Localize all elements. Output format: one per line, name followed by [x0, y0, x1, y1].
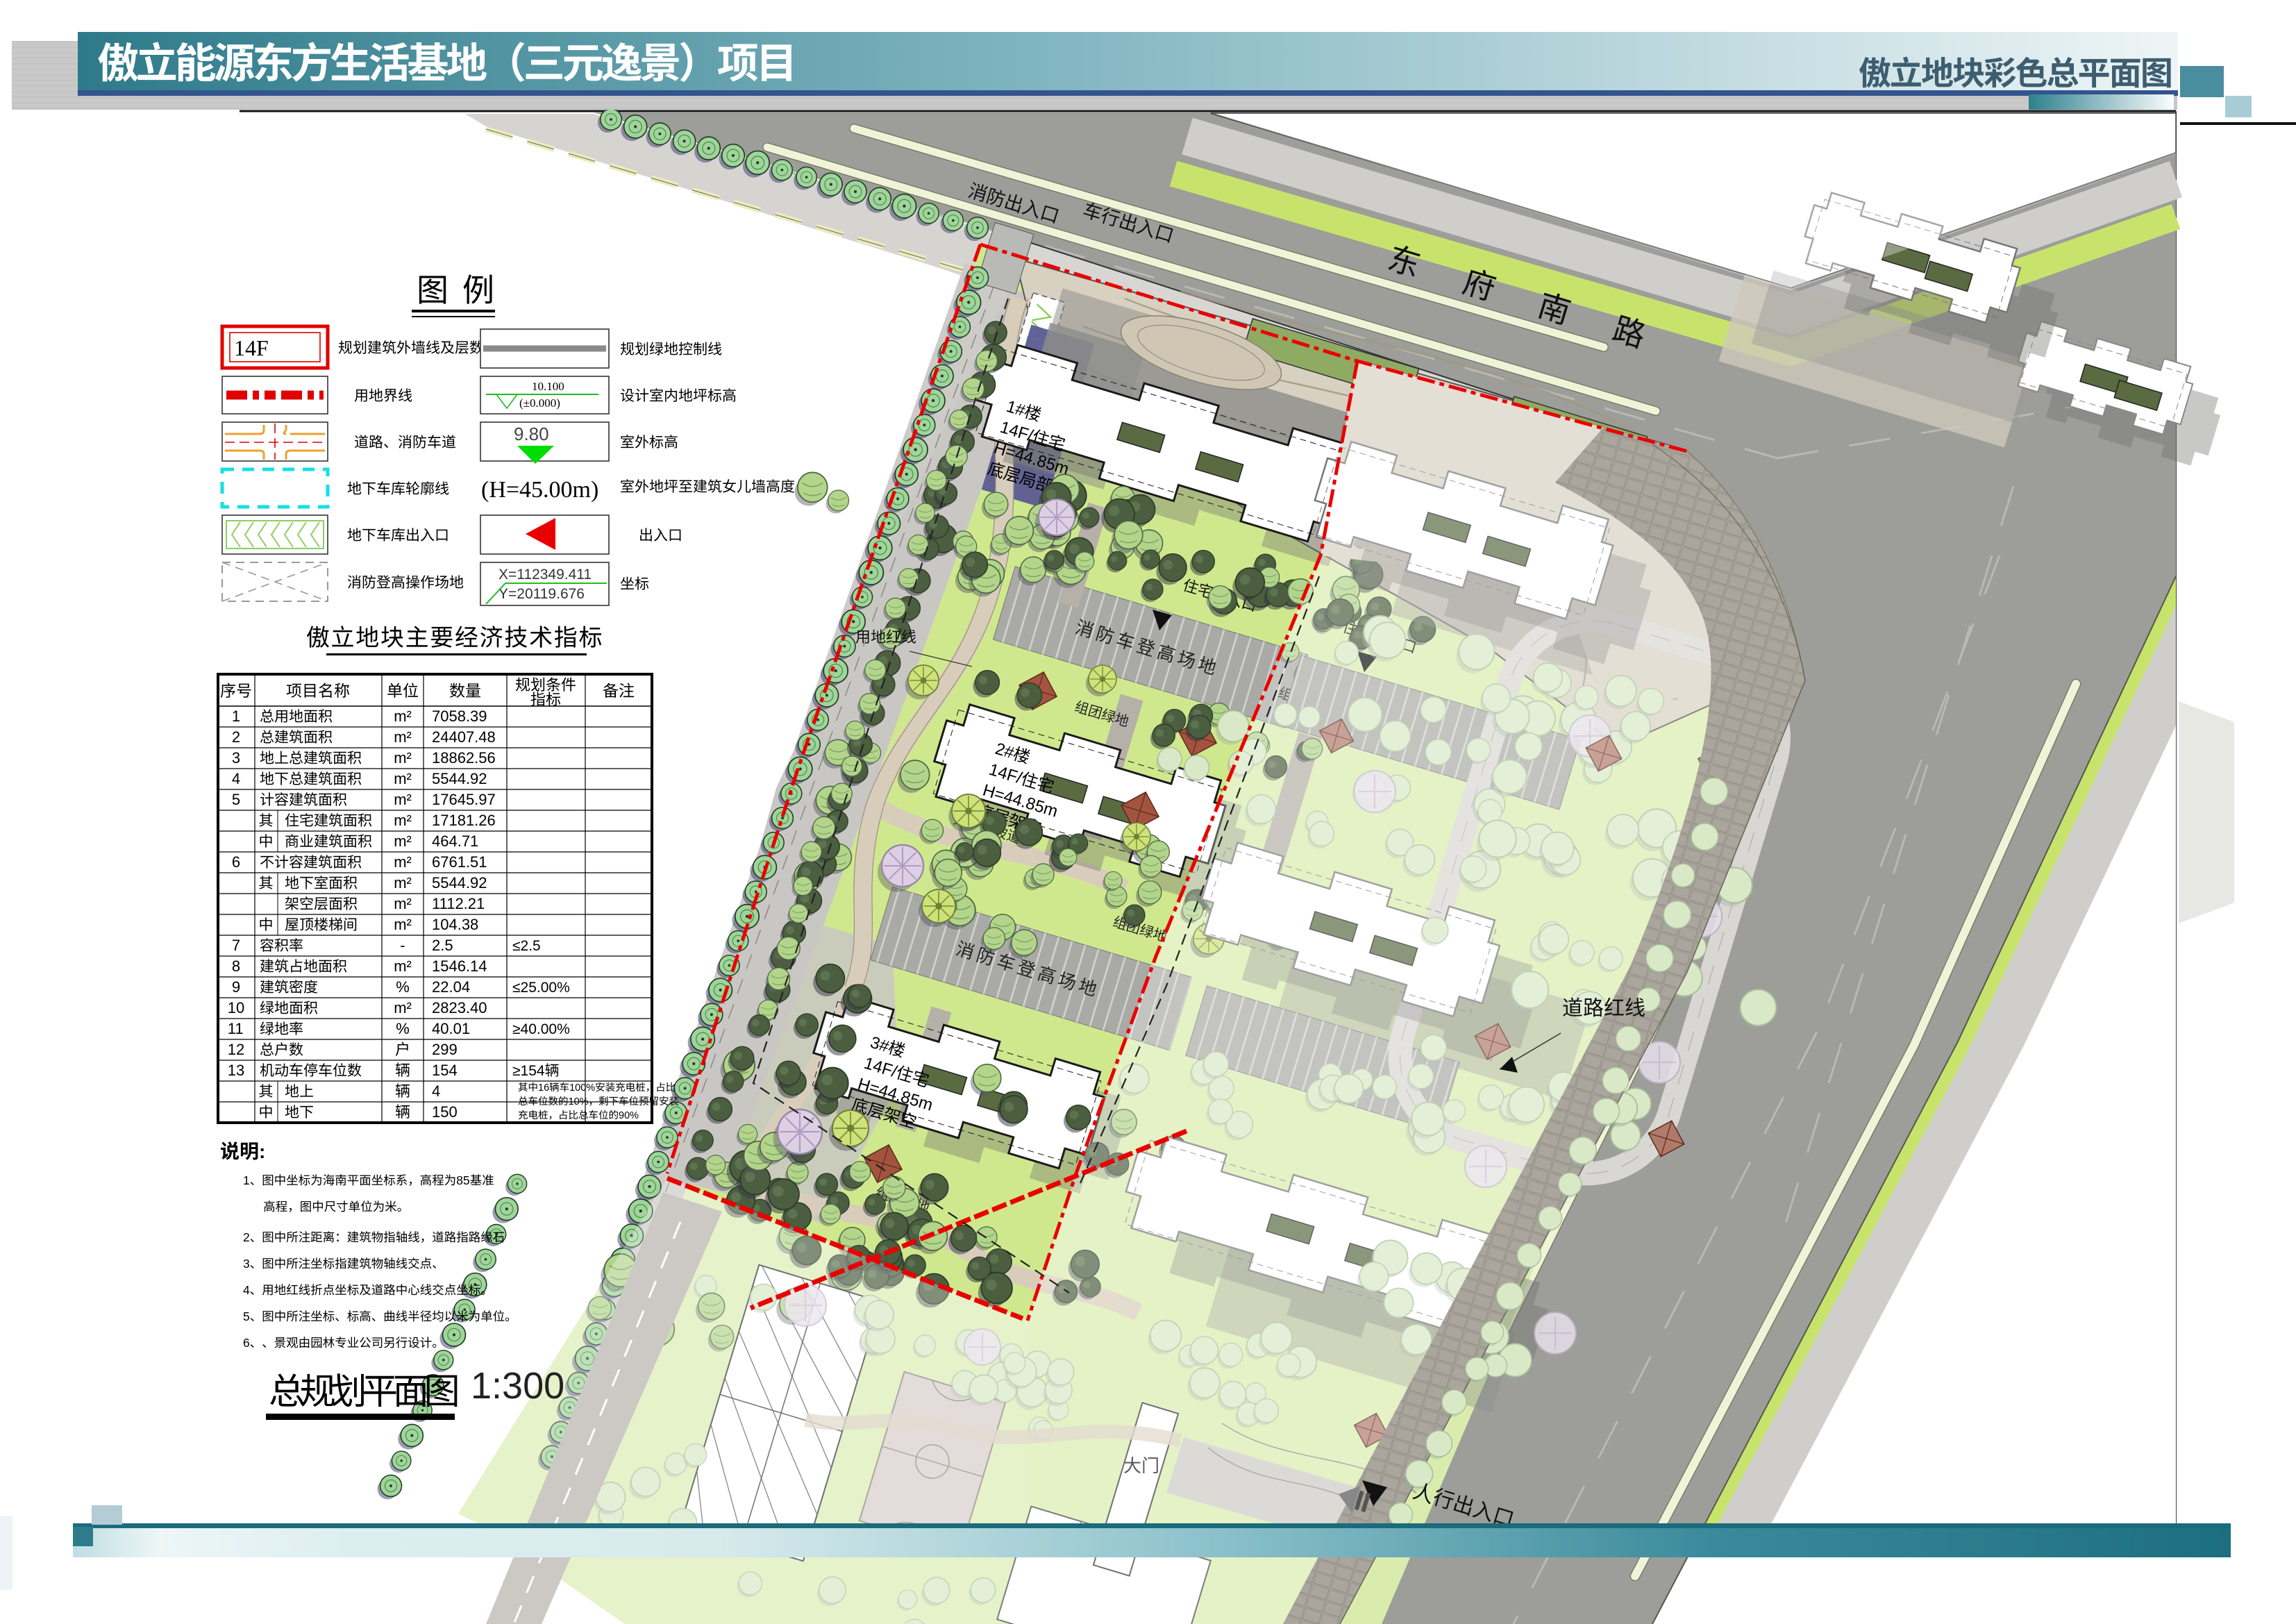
svg-text:-: - — [400, 937, 405, 954]
svg-text:150: 150 — [432, 1103, 458, 1121]
svg-text:1112.21: 1112.21 — [432, 895, 485, 912]
svg-text:85: 85 — [456, 1173, 469, 1187]
svg-text:1:300: 1:300 — [471, 1365, 564, 1407]
svg-text:6761.51: 6761.51 — [432, 853, 487, 871]
svg-text:1546.14: 1546.14 — [432, 957, 487, 975]
svg-text:13: 13 — [228, 1062, 244, 1079]
svg-text:1: 1 — [243, 1173, 250, 1187]
svg-text:14F: 14F — [234, 335, 269, 360]
svg-text:m²: m² — [394, 874, 412, 891]
svg-text:Y=20119.676: Y=20119.676 — [498, 586, 585, 602]
svg-text:90%: 90% — [619, 1110, 639, 1121]
svg-text:16: 16 — [538, 1082, 549, 1094]
svg-text:17181.26: 17181.26 — [432, 812, 496, 829]
svg-text::: : — [259, 1141, 265, 1162]
svg-text:154: 154 — [432, 1062, 458, 1079]
svg-text:3: 3 — [232, 749, 240, 767]
svg-text:4: 4 — [232, 770, 240, 787]
svg-text:≤2.5: ≤2.5 — [512, 938, 541, 954]
svg-text:104.38: 104.38 — [432, 916, 478, 933]
svg-text:8: 8 — [232, 957, 240, 975]
svg-text:m²: m² — [394, 749, 412, 767]
svg-text:4: 4 — [243, 1283, 250, 1297]
svg-text:9.80: 9.80 — [514, 424, 549, 444]
svg-text:464.71: 464.71 — [432, 832, 478, 850]
svg-text:m²: m² — [394, 999, 412, 1016]
svg-text:12: 12 — [228, 1041, 244, 1058]
svg-text:≥154: ≥154 — [512, 1063, 545, 1079]
svg-text:5: 5 — [243, 1309, 250, 1323]
svg-text:m²: m² — [394, 832, 412, 850]
svg-text:m²: m² — [394, 812, 412, 829]
svg-text:3: 3 — [243, 1257, 250, 1271]
svg-text:m²: m² — [394, 791, 412, 808]
svg-text:m²: m² — [394, 770, 412, 787]
svg-text:10.100: 10.100 — [532, 380, 564, 393]
svg-text:m²: m² — [394, 957, 412, 975]
svg-text:m²: m² — [394, 916, 412, 933]
svg-text:2823.40: 2823.40 — [432, 999, 487, 1016]
svg-text:2: 2 — [232, 728, 240, 746]
svg-text:m²: m² — [394, 895, 412, 912]
svg-text:18862.56: 18862.56 — [432, 749, 496, 767]
svg-text:(H=45.00m): (H=45.00m) — [481, 477, 598, 503]
svg-text:9: 9 — [232, 978, 240, 996]
svg-text:22.04: 22.04 — [432, 978, 470, 996]
svg-text:17645.97: 17645.97 — [432, 791, 496, 808]
svg-text:1: 1 — [232, 708, 240, 725]
svg-text:100%: 100% — [569, 1082, 595, 1094]
svg-text:5544.92: 5544.92 — [432, 770, 487, 787]
svg-text:7058.39: 7058.39 — [432, 708, 487, 725]
svg-text:6: 6 — [243, 1336, 250, 1350]
svg-text:2: 2 — [243, 1230, 250, 1244]
svg-text:4: 4 — [432, 1082, 440, 1100]
svg-text:2.5: 2.5 — [432, 937, 453, 954]
svg-text:≤25.00%: ≤25.00% — [512, 980, 570, 996]
svg-text:299: 299 — [432, 1041, 458, 1058]
svg-text:40.01: 40.01 — [432, 1020, 470, 1037]
svg-text:m²: m² — [394, 853, 412, 871]
svg-text:%: % — [396, 978, 410, 996]
svg-text:(±0.000): (±0.000) — [519, 396, 560, 410]
svg-text:6: 6 — [232, 853, 240, 871]
svg-text:≥40.00%: ≥40.00% — [512, 1021, 570, 1037]
svg-text:m²: m² — [394, 708, 412, 725]
svg-text:5544.92: 5544.92 — [432, 874, 487, 891]
svg-text:%: % — [396, 1020, 410, 1037]
svg-text:10: 10 — [228, 999, 244, 1016]
svg-text:11: 11 — [228, 1020, 244, 1037]
svg-text:m²: m² — [394, 728, 412, 746]
svg-text:10%: 10% — [569, 1096, 589, 1107]
svg-text:7: 7 — [232, 937, 240, 954]
svg-text:5: 5 — [232, 791, 240, 808]
svg-text:24407.48: 24407.48 — [432, 728, 496, 746]
svg-text:X=112349.411: X=112349.411 — [498, 567, 592, 583]
